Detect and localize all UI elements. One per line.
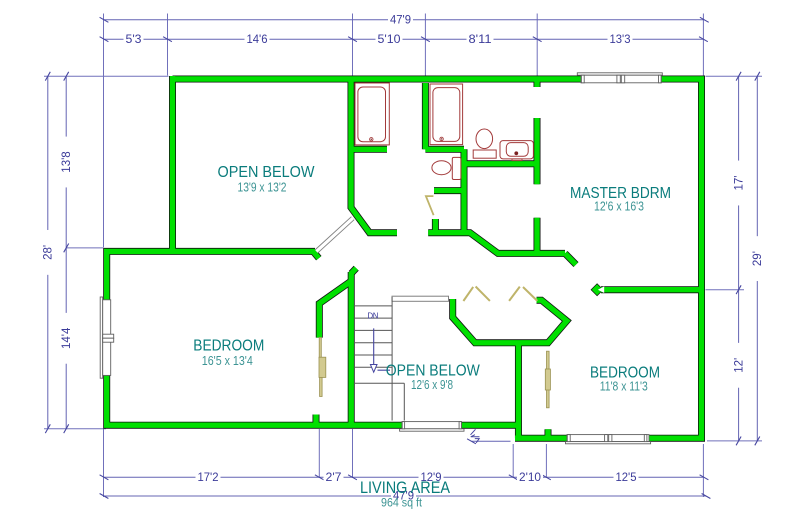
svg-text:13'3: 13'3 <box>610 34 631 46</box>
svg-text:12'6 x 9'8: 12'6 x 9'8 <box>411 378 453 392</box>
svg-text:17': 17' <box>733 176 745 191</box>
svg-text:16'5 x 13'4: 16'5 x 13'4 <box>202 354 253 368</box>
svg-text:47'9: 47'9 <box>390 15 411 27</box>
svg-text:2'10: 2'10 <box>519 472 541 484</box>
svg-text:12'6 x 16'3: 12'6 x 16'3 <box>594 200 644 214</box>
svg-text:12'5: 12'5 <box>616 472 637 484</box>
svg-text:OPEN BELOW: OPEN BELOW <box>386 362 481 379</box>
svg-text:LIVING AREA: LIVING AREA <box>360 479 450 497</box>
svg-text:28': 28' <box>43 245 55 260</box>
svg-text:14'4: 14'4 <box>61 327 73 349</box>
svg-text:14'6: 14'6 <box>247 34 268 46</box>
svg-text:BEDROOM: BEDROOM <box>193 338 264 355</box>
svg-text:11'8 x 11'3: 11'8 x 11'3 <box>600 379 648 393</box>
svg-text:5'10: 5'10 <box>378 34 401 46</box>
svg-text:17'2: 17'2 <box>198 472 219 484</box>
svg-text:DN: DN <box>367 311 378 320</box>
svg-text:29': 29' <box>752 251 764 266</box>
svg-text:12': 12' <box>733 358 745 373</box>
svg-text:5'3: 5'3 <box>126 34 142 46</box>
svg-text:13'9 x 13'2: 13'9 x 13'2 <box>238 181 287 195</box>
svg-text:2'7: 2'7 <box>326 472 342 484</box>
svg-text:OPEN BELOW: OPEN BELOW <box>218 164 316 181</box>
svg-text:13'8: 13'8 <box>61 151 73 172</box>
svg-text:8'11: 8'11 <box>469 34 492 46</box>
svg-text:964 sq ft: 964 sq ft <box>381 498 423 510</box>
